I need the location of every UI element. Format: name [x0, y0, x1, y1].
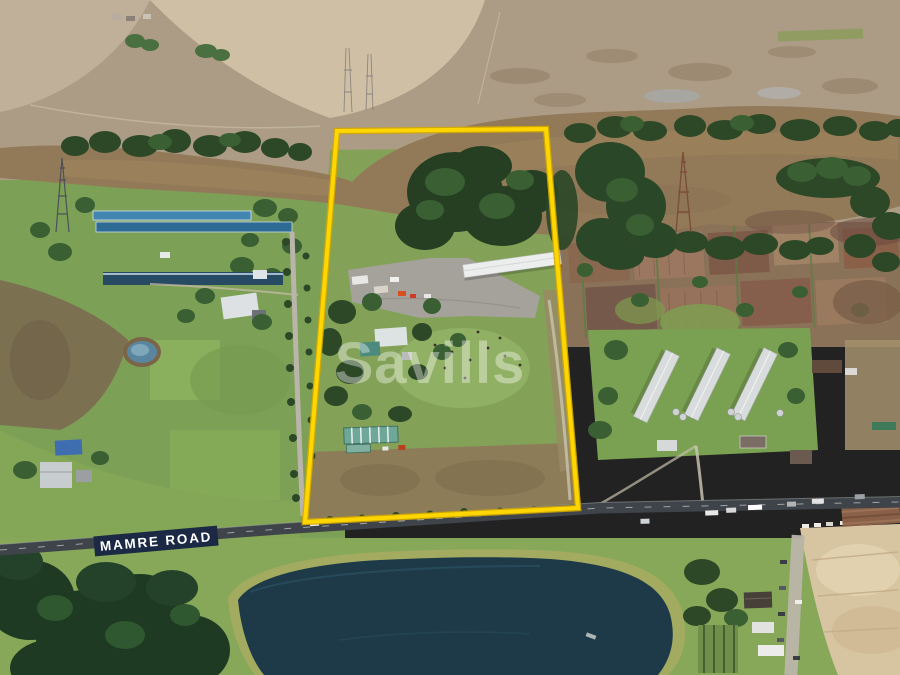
dam-pond: [228, 549, 685, 675]
construction-site: [777, 519, 900, 675]
aerial-scene: MAMRE ROAD Savills: [0, 0, 900, 675]
aerial-photo: MAMRE ROAD Savills: [0, 0, 900, 675]
watermark: Savills: [335, 331, 526, 396]
